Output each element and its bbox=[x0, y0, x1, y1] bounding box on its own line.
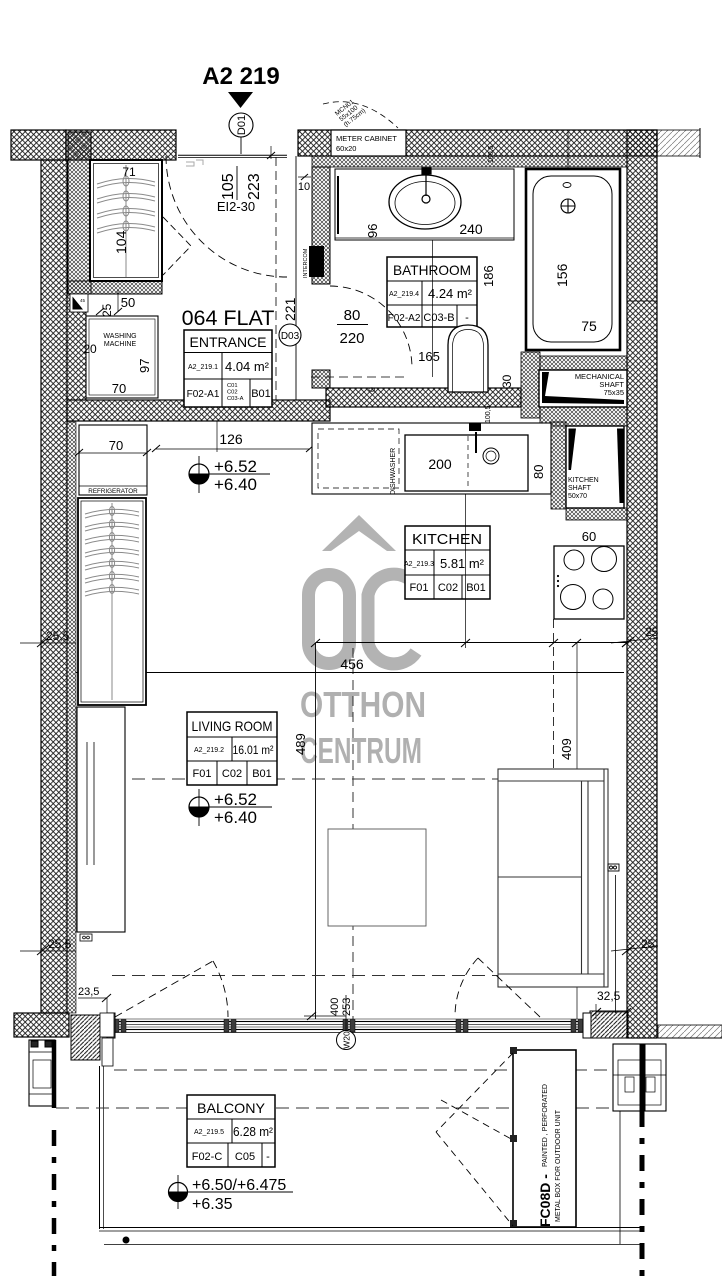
svg-text:-: - bbox=[266, 1151, 270, 1163]
svg-text:C02: C02 bbox=[438, 582, 458, 594]
svg-text:KITCHEN: KITCHEN bbox=[568, 477, 599, 484]
svg-text:156: 156 bbox=[554, 263, 570, 287]
svg-text:DISHWASHER: DISHWASHER bbox=[390, 448, 397, 495]
svg-text:80: 80 bbox=[344, 307, 361, 324]
svg-text:B01: B01 bbox=[251, 388, 271, 400]
svg-text:80: 80 bbox=[531, 465, 546, 479]
svg-text:C02: C02 bbox=[227, 390, 238, 396]
svg-text:186: 186 bbox=[481, 265, 496, 287]
svg-text:064 FLAT: 064 FLAT bbox=[182, 306, 275, 330]
svg-text:10: 10 bbox=[298, 181, 310, 193]
svg-text:50: 50 bbox=[121, 295, 135, 310]
svg-text:71: 71 bbox=[122, 165, 136, 179]
svg-text:C03-A: C03-A bbox=[227, 396, 244, 402]
svg-text:C02: C02 bbox=[222, 768, 242, 780]
svg-text:100,5: 100,5 bbox=[485, 405, 492, 423]
svg-text:223: 223 bbox=[246, 173, 263, 200]
svg-text:20: 20 bbox=[83, 342, 97, 356]
svg-text:A2 219: A2 219 bbox=[202, 63, 279, 90]
svg-text:60: 60 bbox=[582, 529, 596, 544]
svg-text:W20: W20 bbox=[342, 1031, 352, 1049]
svg-text:25,5: 25,5 bbox=[46, 629, 70, 643]
svg-text:D03: D03 bbox=[281, 331, 300, 342]
svg-text:6.28 m²: 6.28 m² bbox=[233, 1125, 273, 1139]
svg-text:75: 75 bbox=[581, 318, 597, 334]
svg-text:400: 400 bbox=[329, 998, 341, 1016]
svg-text:0: 0 bbox=[367, 387, 377, 392]
svg-text:BATHROOM: BATHROOM bbox=[393, 262, 471, 278]
svg-text:B01: B01 bbox=[466, 582, 486, 594]
svg-text:45: 45 bbox=[80, 298, 86, 303]
svg-text:165: 165 bbox=[418, 349, 440, 364]
svg-text:+6.40: +6.40 bbox=[214, 808, 257, 827]
svg-text:PAINTED , PERFORATED: PAINTED , PERFORATED bbox=[542, 1084, 549, 1167]
svg-text:REFRIGERATOR: REFRIGERATOR bbox=[88, 488, 138, 495]
svg-text:70: 70 bbox=[109, 438, 123, 453]
svg-text:EI2-30: EI2-30 bbox=[217, 199, 255, 214]
svg-text:+6.52: +6.52 bbox=[214, 790, 257, 809]
svg-text:456: 456 bbox=[340, 656, 364, 672]
svg-text:C05: C05 bbox=[235, 1151, 255, 1163]
svg-text:200: 200 bbox=[428, 456, 452, 472]
svg-text:A2_219.4: A2_219.4 bbox=[389, 291, 419, 298]
svg-text:25: 25 bbox=[641, 937, 655, 951]
svg-text:+6.50/+6.475: +6.50/+6.475 bbox=[192, 1177, 286, 1194]
svg-text:23,5: 23,5 bbox=[78, 986, 99, 998]
svg-text:WASHING: WASHING bbox=[103, 333, 136, 340]
svg-text:105: 105 bbox=[220, 173, 237, 200]
svg-text:70: 70 bbox=[112, 381, 126, 396]
svg-text:30: 30 bbox=[500, 374, 514, 388]
svg-text:16.01 m²: 16.01 m² bbox=[233, 743, 274, 757]
svg-text:75x35: 75x35 bbox=[604, 388, 624, 397]
svg-text:+6.35: +6.35 bbox=[192, 1196, 233, 1213]
svg-text:B01: B01 bbox=[252, 768, 272, 780]
svg-text:OTTHON: OTTHON bbox=[300, 684, 426, 725]
svg-text:-: - bbox=[465, 312, 469, 324]
svg-text:+6.40: +6.40 bbox=[214, 475, 257, 494]
svg-text:32,5: 32,5 bbox=[597, 989, 621, 1003]
svg-text:4.24 m²: 4.24 m² bbox=[428, 286, 473, 301]
svg-text:INTERCOM: INTERCOM bbox=[303, 248, 309, 278]
svg-text:METAL BOX FOR OUTDOOR UNIT: METAL BOX FOR OUTDOOR UNIT bbox=[555, 1109, 562, 1222]
svg-text:KITCHEN: KITCHEN bbox=[412, 531, 482, 548]
svg-text:C01: C01 bbox=[227, 383, 238, 389]
svg-text:F02-C: F02-C bbox=[192, 1151, 223, 1163]
svg-text:126: 126 bbox=[219, 431, 243, 447]
svg-text:A2_219.1: A2_219.1 bbox=[188, 364, 218, 371]
svg-text:ENTRANCE: ENTRANCE bbox=[190, 334, 267, 350]
svg-text:100,5: 100,5 bbox=[488, 145, 495, 163]
svg-text:97: 97 bbox=[137, 359, 152, 373]
svg-text:SHAFT: SHAFT bbox=[568, 485, 592, 492]
svg-text:25: 25 bbox=[645, 625, 659, 639]
svg-text:A2_219.5: A2_219.5 bbox=[194, 1129, 224, 1136]
svg-text:104: 104 bbox=[113, 230, 129, 254]
svg-text:D01: D01 bbox=[236, 115, 248, 135]
svg-text:240: 240 bbox=[459, 221, 483, 237]
svg-text:4.04 m²: 4.04 m² bbox=[225, 359, 270, 374]
svg-text:A2_219.3: A2_219.3 bbox=[404, 561, 434, 568]
svg-text:50x70: 50x70 bbox=[568, 493, 587, 500]
svg-text:409: 409 bbox=[559, 738, 574, 760]
svg-text:FC08D -: FC08D - bbox=[537, 1174, 553, 1227]
svg-text:F01: F01 bbox=[410, 582, 429, 594]
svg-text:C03-B: C03-B bbox=[423, 312, 454, 324]
svg-text:96: 96 bbox=[365, 224, 380, 238]
svg-text:A2_219.2: A2_219.2 bbox=[194, 747, 224, 754]
svg-text:5.81 m²: 5.81 m² bbox=[440, 556, 485, 571]
svg-text:253: 253 bbox=[341, 998, 353, 1016]
svg-text:LIVING ROOM: LIVING ROOM bbox=[192, 718, 273, 734]
svg-text:BALCONY: BALCONY bbox=[197, 1100, 266, 1116]
svg-text:25,5: 25,5 bbox=[48, 937, 72, 951]
svg-text:F02-A1: F02-A1 bbox=[187, 389, 220, 400]
svg-text:220: 220 bbox=[339, 330, 364, 347]
svg-text:F01: F01 bbox=[193, 768, 212, 780]
svg-text:489: 489 bbox=[293, 733, 308, 755]
svg-text:60x20: 60x20 bbox=[336, 144, 356, 153]
svg-text:+6.52: +6.52 bbox=[214, 457, 257, 476]
svg-text:METER CABINET: METER CABINET bbox=[336, 134, 397, 143]
svg-text:CENTRUM: CENTRUM bbox=[300, 730, 422, 771]
svg-text:MACHINE: MACHINE bbox=[104, 341, 137, 348]
